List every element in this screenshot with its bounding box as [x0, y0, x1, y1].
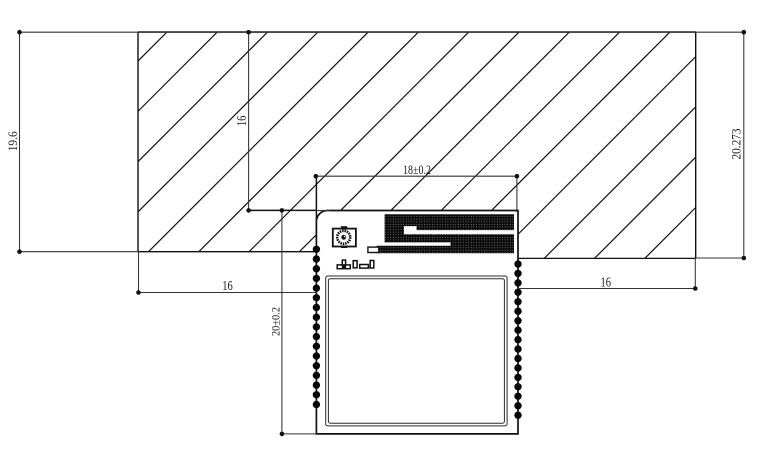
svg-text:16: 16 — [222, 278, 233, 293]
svg-text:20.273: 20.273 — [728, 129, 743, 160]
svg-text:19.6: 19.6 — [5, 131, 20, 151]
svg-text:16: 16 — [234, 115, 249, 126]
svg-text:18±0.2: 18±0.2 — [403, 162, 431, 177]
svg-text:16: 16 — [601, 275, 612, 290]
svg-text:20±0.2: 20±0.2 — [270, 307, 282, 336]
